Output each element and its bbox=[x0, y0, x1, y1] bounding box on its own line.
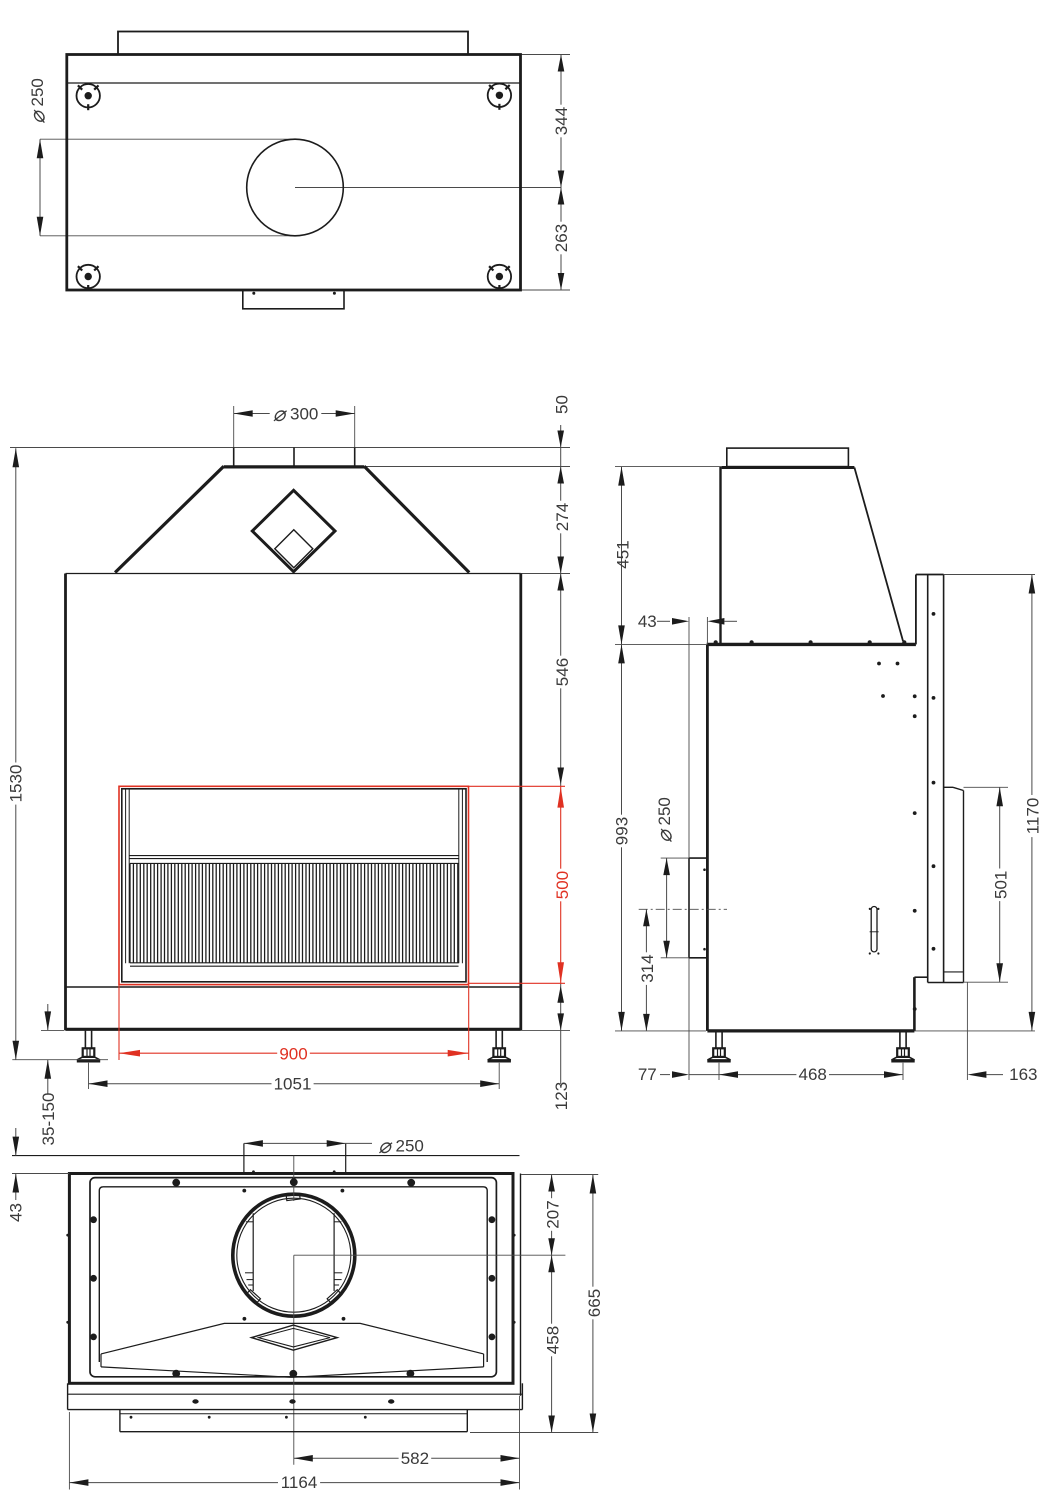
svg-text:1164: 1164 bbox=[281, 1473, 318, 1492]
svg-text:993: 993 bbox=[613, 817, 632, 845]
svg-text:468: 468 bbox=[799, 1065, 827, 1084]
svg-text:501: 501 bbox=[992, 871, 1011, 899]
svg-text:123: 123 bbox=[552, 1082, 571, 1110]
svg-text:274: 274 bbox=[553, 503, 572, 531]
svg-text:344: 344 bbox=[552, 107, 571, 135]
svg-text:665: 665 bbox=[585, 1289, 604, 1317]
svg-text:⌀ 250: ⌀ 250 bbox=[378, 1135, 424, 1158]
svg-text:77: 77 bbox=[638, 1065, 657, 1084]
svg-text:⌀ 250: ⌀ 250 bbox=[26, 78, 49, 124]
svg-text:500: 500 bbox=[553, 871, 572, 899]
svg-text:⌀ 300: ⌀ 300 bbox=[273, 403, 319, 426]
svg-text:263: 263 bbox=[552, 224, 571, 252]
svg-text:43: 43 bbox=[7, 1203, 26, 1222]
svg-text:⌀ 250: ⌀ 250 bbox=[653, 797, 676, 843]
svg-text:458: 458 bbox=[544, 1326, 563, 1354]
svg-text:1170: 1170 bbox=[1024, 798, 1043, 835]
svg-text:1051: 1051 bbox=[274, 1075, 312, 1094]
svg-text:314: 314 bbox=[638, 954, 657, 982]
svg-text:35-150: 35-150 bbox=[39, 1093, 58, 1146]
svg-text:546: 546 bbox=[553, 658, 572, 686]
svg-text:50: 50 bbox=[553, 395, 572, 414]
svg-text:43: 43 bbox=[638, 612, 657, 631]
svg-text:900: 900 bbox=[279, 1045, 307, 1064]
svg-text:207: 207 bbox=[544, 1200, 563, 1228]
svg-text:1530: 1530 bbox=[6, 765, 25, 803]
svg-text:451: 451 bbox=[614, 540, 633, 568]
svg-text:582: 582 bbox=[401, 1449, 429, 1468]
svg-text:163: 163 bbox=[1009, 1065, 1037, 1084]
